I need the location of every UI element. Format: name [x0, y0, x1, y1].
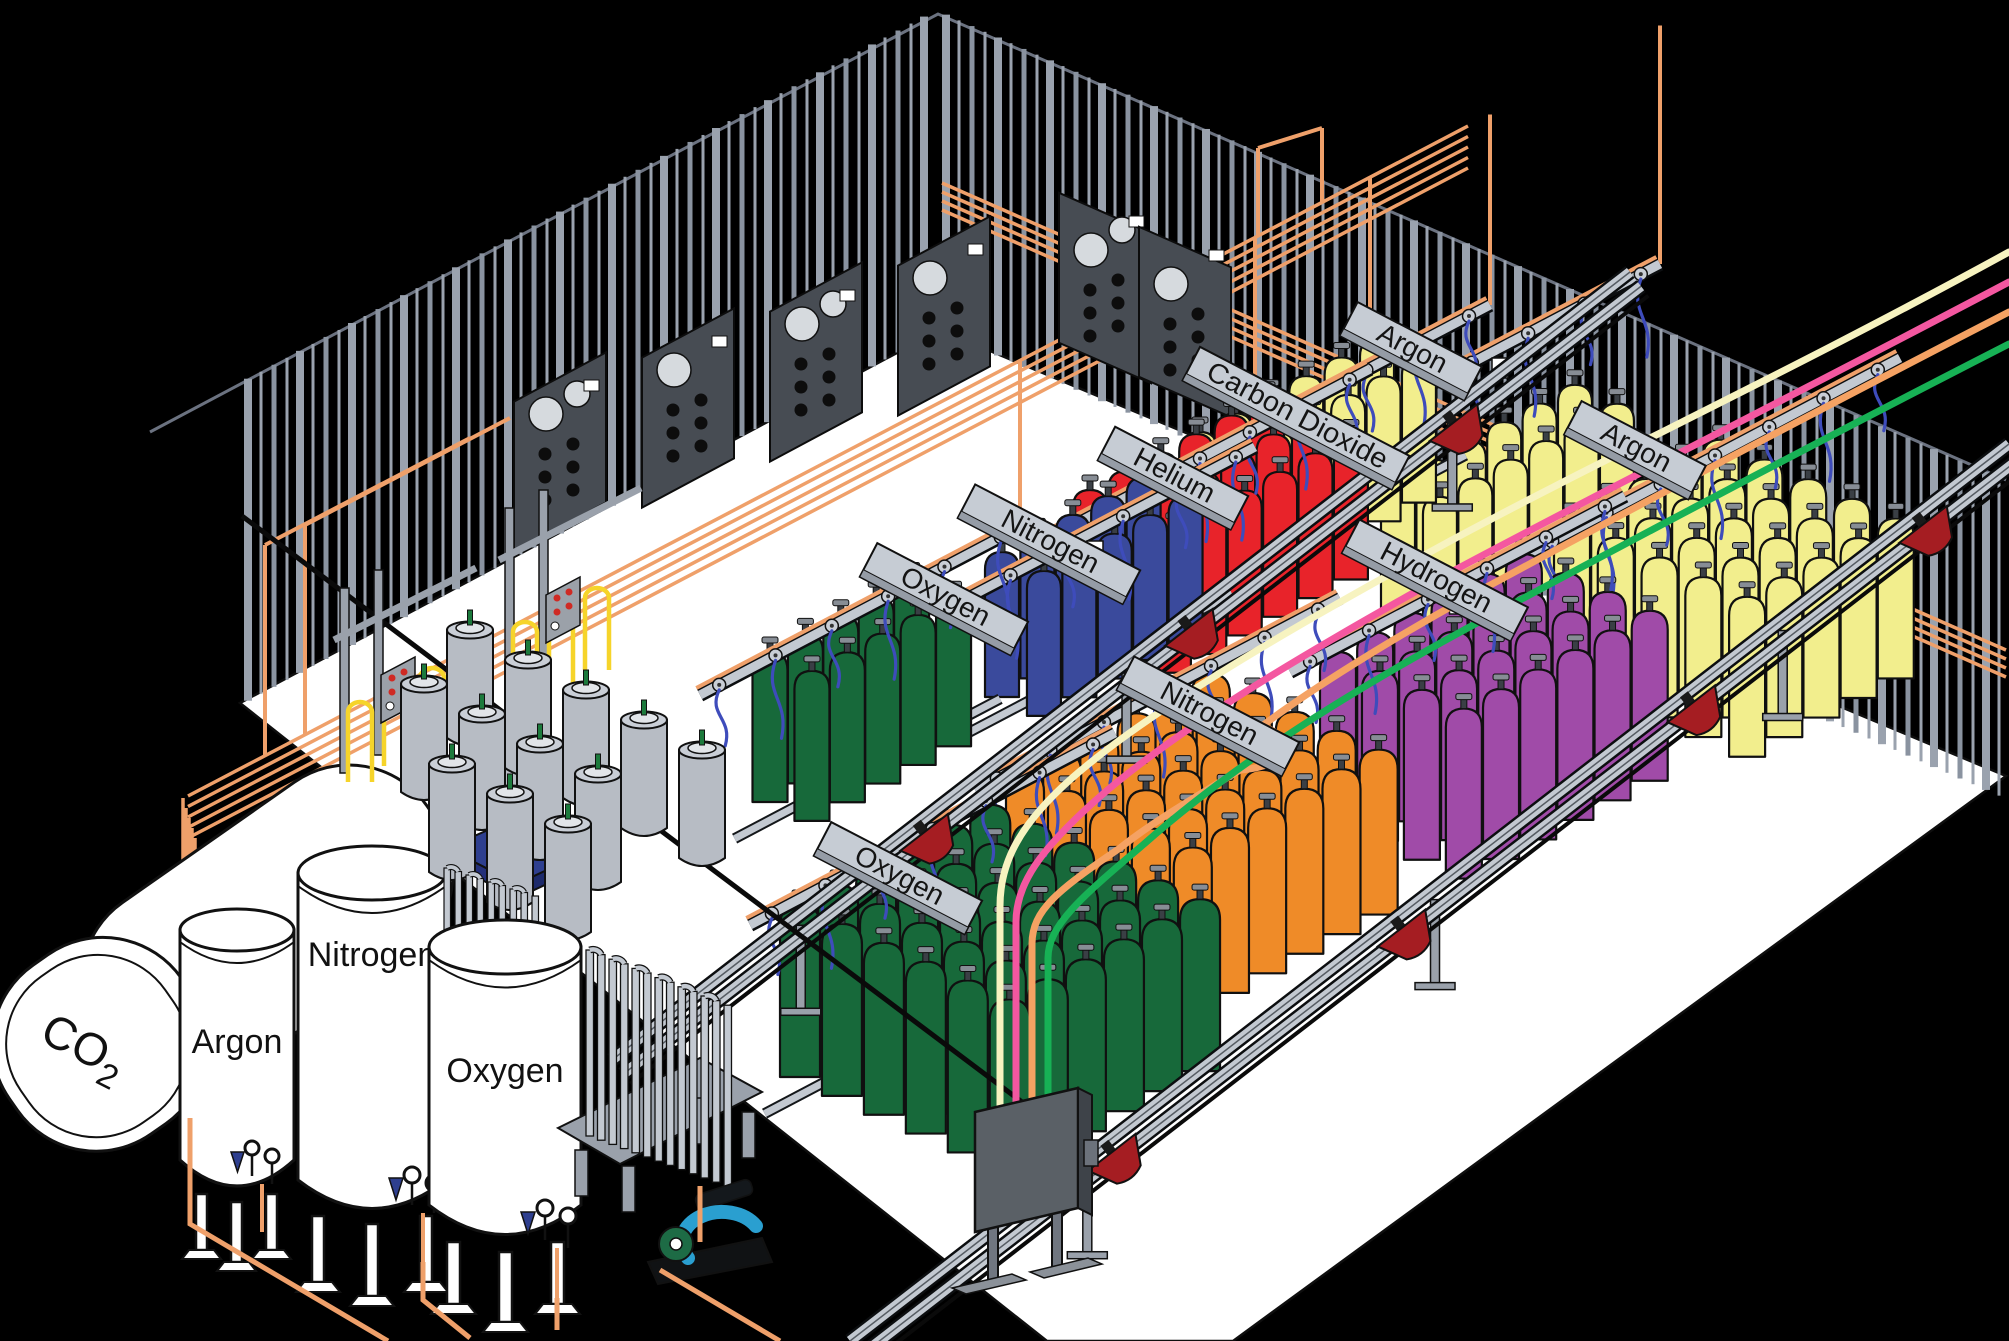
dewar-valve: [538, 724, 543, 739]
gauge-tag: [1129, 216, 1144, 227]
gauge-dot: [1084, 330, 1097, 343]
panel-indicator: [566, 589, 573, 596]
cylinder-valve-wheel: [762, 637, 778, 643]
cylinder-valve-wheel: [1689, 523, 1705, 529]
vaporizer-tube: [609, 959, 617, 1144]
conveyor-post-foot: [1432, 504, 1472, 511]
gauge-dot: [567, 461, 580, 474]
cylinder-valve-wheel: [1133, 737, 1149, 743]
cylinder-valve-wheel: [1296, 774, 1312, 780]
cylinder-valve-wheel: [1414, 675, 1430, 681]
argon-tank: Argon: [180, 909, 294, 1271]
cylinder-valve-wheel: [1642, 596, 1658, 602]
cylinder-valve-wheel: [1100, 481, 1116, 487]
vaporizer-tube: [598, 955, 606, 1141]
cylinder-valve-wheel: [1776, 562, 1792, 568]
cylinder-valve-wheel: [1770, 523, 1786, 529]
dewar-body: [429, 764, 475, 880]
manifold-valve-hub: [717, 683, 721, 687]
manifold-valve-hub: [1603, 505, 1607, 509]
gauge-dot: [951, 348, 964, 361]
cylinder-valve-wheel: [1138, 775, 1154, 781]
cylinder-valve-wheel: [876, 928, 892, 934]
cylinder-valve-wheel: [1739, 582, 1755, 588]
gauge-tag: [1209, 250, 1224, 261]
cylinder-valve-wheel: [797, 618, 813, 624]
gauge-dot: [823, 348, 836, 361]
conveyor-post-foot: [1415, 983, 1455, 990]
manifold-valve-hub: [1263, 636, 1267, 640]
cylinder-valve-wheel: [1456, 694, 1472, 700]
cylinder-valve-wheel: [875, 619, 891, 625]
cylinder-valve-wheel: [918, 947, 934, 953]
wall-stripe: [868, 44, 876, 366]
oxygen-tank-label: Oxygen: [446, 1052, 563, 1090]
dewar-valve: [526, 640, 531, 655]
cylinder-valve-wheel: [1521, 578, 1537, 584]
manifold-valve-hub: [774, 653, 778, 657]
gas-cylinder-oxygen_a: [794, 671, 829, 821]
cylinder-valve-wheel: [960, 965, 976, 971]
gauge-tag: [968, 244, 983, 255]
cylinder-valve-wheel: [1800, 464, 1816, 470]
wall-stripe: [884, 37, 887, 359]
gas-cylinder-oxygen_b: [1104, 939, 1144, 1111]
cylinder-valve-wheel: [1112, 885, 1128, 891]
cylinder-valve-wheel: [1334, 342, 1350, 348]
wall-stripe: [636, 170, 641, 492]
cylinder-valve-wheel: [1078, 944, 1094, 950]
gas-cylinder-nitrogen_b: [1322, 769, 1360, 934]
conveyor-post-foot: [781, 1008, 821, 1015]
cylinder-valve-wheel: [1259, 793, 1275, 799]
gauge-dot: [823, 394, 836, 407]
cylinder-valve-wheel: [1446, 617, 1462, 623]
cylinder-valve-wheel: [1732, 542, 1748, 548]
cylinder-valve-wheel: [1567, 370, 1583, 376]
manifold-valve-hub: [1467, 314, 1471, 318]
gauge-dot: [1164, 318, 1177, 331]
cylinder-valve-wheel: [1082, 475, 1098, 481]
gauge-dot: [795, 381, 808, 394]
cylinder-valve-wheel: [804, 656, 820, 662]
wall-stripe: [494, 246, 497, 568]
manifold-valve-hub: [1198, 457, 1202, 461]
manifold-valve-hub: [1485, 567, 1489, 571]
cylinder-valve-wheel: [1467, 463, 1483, 469]
manifold-valve-hub: [1038, 771, 1042, 775]
manifold-valve-hub: [1234, 455, 1238, 459]
liquid-dewar: [621, 700, 667, 836]
gauge-dot: [567, 438, 580, 451]
cylinder-valve-wheel: [1558, 558, 1574, 564]
gauge-dot: [951, 302, 964, 315]
panel-button: [551, 622, 559, 630]
gauge-dot: [823, 371, 836, 384]
vaporizer-tube: [678, 987, 686, 1170]
cylinder-valve-wheel: [1530, 654, 1546, 660]
vaporizer-tube: [644, 973, 652, 1157]
gauge-tag: [584, 380, 599, 391]
vaporizer-tube: [586, 950, 594, 1136]
gas-cylinder-oxygen_b: [1142, 919, 1182, 1091]
gauge-dot: [539, 448, 552, 461]
wall-stripe: [452, 267, 460, 589]
manifold-valve-hub: [886, 594, 890, 598]
gauge-dot: [923, 312, 936, 325]
dewar-valve: [422, 664, 427, 679]
gas-cylinder-nitrogen_b: [1285, 789, 1323, 954]
wall-stripe: [1998, 478, 2001, 796]
wall-stripe: [244, 379, 252, 701]
gauge-dial: [913, 261, 947, 295]
platform-leg: [575, 1150, 588, 1196]
gas-cylinder-nitrogen_b: [1248, 808, 1286, 973]
manifold-valve-hub: [1209, 664, 1213, 668]
cylinder-valve-wheel: [1695, 562, 1711, 568]
manifold-valve-hub: [1526, 331, 1530, 335]
cylinder-valve-wheel: [1116, 924, 1132, 930]
gauge-dot: [695, 440, 708, 453]
dewar-valve: [642, 700, 647, 715]
gauge-dial: [1154, 267, 1188, 301]
wall-stripe: [624, 177, 627, 499]
gauge-dot: [1192, 308, 1205, 321]
gauge-dot: [667, 450, 680, 463]
gas-cylinder-hydrogen: [1404, 690, 1440, 860]
cylinder-valve-wheel: [1329, 716, 1345, 722]
gauge-dot: [1112, 297, 1125, 310]
gauge-dot: [667, 427, 680, 440]
gauge-dot: [1192, 331, 1205, 344]
vaporizer-tube: [621, 964, 629, 1149]
manifold-valve-hub: [942, 565, 946, 569]
vaporizer-tube: [690, 991, 698, 1173]
cylinder-valve-wheel: [1175, 756, 1191, 762]
cylinder-valve-wheel: [1032, 886, 1048, 892]
wall-stripe: [442, 274, 445, 596]
cylinder-valve-wheel: [1372, 656, 1388, 662]
gas-cylinder-nitrogen_b: [1360, 750, 1398, 915]
cylinder-valve-wheel: [1563, 596, 1579, 602]
gas-cylinder-oxygen_b: [822, 924, 862, 1096]
dewar-body: [545, 824, 591, 940]
wall-stripe: [312, 344, 315, 666]
cylinder-valve-wheel: [839, 637, 855, 643]
wall-stripe: [1022, 49, 1027, 367]
oxygen-tank: Oxygen: [429, 920, 581, 1332]
gauge-dot: [695, 417, 708, 430]
wall-stripe: [608, 184, 616, 506]
gas-cylinder-oxygen_a: [830, 652, 865, 802]
gauge-dot: [1164, 341, 1177, 354]
gauge-dot: [567, 484, 580, 497]
panel-indicator: [554, 595, 561, 602]
panel-button: [386, 702, 394, 710]
manifold-valve-hub: [1639, 272, 1643, 276]
cylinder-valve-wheel: [1185, 832, 1201, 838]
manifold-valve-hub: [1367, 628, 1371, 632]
gauge-dot: [1164, 364, 1177, 377]
wall-stripe: [1972, 466, 1975, 784]
wall-stripe: [1946, 455, 1949, 773]
gauge-tag: [840, 290, 855, 301]
manifold-valve-hub: [1248, 430, 1252, 434]
cylinder-valve-wheel: [1538, 426, 1554, 432]
dewar-valve: [584, 670, 589, 685]
wall-stripe: [994, 38, 1002, 356]
cylinder-valve-wheel: [1451, 655, 1467, 661]
cylinder-valve-wheel: [1150, 865, 1166, 871]
manifold-valve-hub: [1091, 743, 1095, 747]
wall-stripe: [468, 260, 471, 582]
wall-stripe: [1046, 60, 1054, 378]
platform-leg: [742, 1112, 755, 1158]
vaporizer-tube: [701, 996, 709, 1178]
vaporizer-tube: [632, 968, 640, 1152]
manifold-valve-hub: [1767, 425, 1771, 429]
gauge-dot: [695, 394, 708, 407]
wall-stripe: [324, 337, 329, 659]
wall-stripe: [390, 302, 393, 624]
gauge-dot: [795, 358, 808, 371]
dewar-body: [679, 750, 725, 866]
cylinder-valve-wheel: [1525, 616, 1541, 622]
wall-stripe: [480, 253, 485, 575]
cylinder-valve-wheel: [833, 600, 849, 606]
dewar-valve: [566, 804, 571, 819]
gas-plant-diagram: Oxygen Nitrogen Helium Carbon Dioxide Ar…: [0, 0, 2009, 1341]
dewar-valve: [480, 694, 485, 709]
liquid-dewar: [679, 730, 725, 866]
wall-stripe: [364, 316, 367, 638]
cylinder-valve-wheel: [1851, 523, 1867, 529]
gauge-dial: [529, 397, 563, 431]
cylinder-valve-wheel: [1567, 635, 1583, 641]
conveyor-post-foot: [1763, 714, 1803, 721]
manifold-valve-hub: [1876, 368, 1880, 372]
gauge-dial: [657, 353, 691, 387]
wall-stripe: [1920, 443, 1923, 761]
manifold-valve-hub: [1544, 536, 1548, 540]
cylinder-valve-wheel: [1333, 754, 1349, 760]
liquid-dewar: [429, 744, 475, 880]
panel-indicator: [401, 669, 408, 676]
wall-stripe: [754, 107, 757, 429]
cylinder-valve-wheel: [1888, 503, 1904, 509]
dewar-valve: [700, 730, 705, 745]
nitrogen-tank-label: Nitrogen: [308, 936, 437, 974]
vaporizer-tube: [667, 982, 675, 1165]
cylinder-valve-wheel: [1154, 904, 1170, 910]
cylinder-valve-wheel: [1298, 361, 1314, 367]
gas-cylinder-oxygen_b: [906, 962, 946, 1134]
gauge-dot: [795, 404, 808, 417]
gauge-dot: [951, 325, 964, 338]
gas-cylinder-oxygen_a: [901, 615, 936, 765]
station-post: [374, 570, 383, 755]
gauge-dot: [1084, 307, 1097, 320]
wall-stripe: [1036, 55, 1039, 373]
gauge-dial: [785, 307, 819, 341]
manifold-valve-hub: [1713, 454, 1717, 458]
vaporizer-tube: [713, 1001, 721, 1183]
vaporizer-tube: [444, 868, 451, 936]
cylinder-valve-wheel: [1609, 389, 1625, 395]
cylinder-valve-wheel: [1605, 615, 1621, 621]
gas-cylinder-oxygen_b: [864, 943, 904, 1115]
cylinder-valve-wheel: [1726, 503, 1742, 509]
dewar-valve: [468, 610, 473, 625]
gas-cylinder-oxygen_b: [1180, 899, 1220, 1071]
cylinder-valve-wheel: [1652, 542, 1668, 548]
platform-leg: [622, 1166, 635, 1212]
panel-indicator: [566, 603, 573, 610]
cylinder-valve-wheel: [1493, 674, 1509, 680]
argon-tank-label: Argon: [192, 1023, 283, 1061]
dewar-valve: [508, 774, 513, 789]
gauge-dial: [1074, 233, 1108, 267]
wall-stripe: [400, 295, 408, 617]
cylinder-valve-wheel: [1813, 543, 1829, 549]
gauge-dot: [1084, 284, 1097, 297]
gauge-dot: [1112, 274, 1125, 287]
gauge-dot: [1112, 320, 1125, 333]
wall-stripe: [1010, 43, 1013, 361]
dewar-valve: [450, 744, 455, 759]
cylinder-valve-wheel: [1192, 884, 1208, 890]
gauge-dot: [667, 404, 680, 417]
gauge-dot: [923, 335, 936, 348]
manifold-valve-hub: [1348, 378, 1352, 382]
cylinder-valve-wheel: [1503, 445, 1519, 451]
panel-indicator: [554, 609, 561, 616]
vaporizer-tube: [655, 978, 663, 1162]
wall-stripe: [1982, 472, 1990, 790]
panel-indicator: [389, 689, 396, 696]
cylinder-valve-wheel: [1272, 457, 1288, 463]
station-post: [539, 490, 548, 675]
liquid-dewar: [545, 804, 591, 940]
gauge-dot: [539, 471, 552, 484]
cylinder-valve-wheel: [1153, 438, 1169, 444]
wall-stripe: [740, 114, 745, 436]
manifold-valve-hub: [1009, 573, 1013, 577]
wall-stripe: [428, 281, 433, 603]
manifold-valve-hub: [1102, 720, 1106, 724]
gas-cylinder-nitrogen_a: [1027, 571, 1061, 716]
panel-indicator: [389, 675, 396, 682]
gauge-dot: [923, 358, 936, 371]
wall-stripe: [296, 351, 304, 673]
nitrogen-tank: Nitrogen: [296, 846, 448, 1306]
manifold-valve-hub: [1121, 514, 1125, 518]
cylinder-valve-wheel: [1237, 475, 1253, 481]
wall-stripe: [286, 358, 289, 680]
wall-stripe: [272, 365, 277, 687]
gauge-tag: [712, 336, 727, 347]
manifold-valve-hub: [830, 624, 834, 628]
vaporizer-tube: [724, 1005, 732, 1186]
dewar-valve: [596, 754, 601, 769]
cylinder-valve-wheel: [1807, 503, 1823, 509]
wall-stripe: [416, 288, 419, 610]
cylinder-valve-wheel: [1844, 484, 1860, 490]
manifold-valve-hub: [1822, 396, 1826, 400]
cylinder-valve-wheel: [1188, 419, 1204, 425]
dewar-body: [621, 720, 667, 836]
cylinder-valve-wheel: [1065, 500, 1081, 506]
cylinder-valve-wheel: [1371, 735, 1387, 741]
cylinder-valve-wheel: [1222, 813, 1238, 819]
cylinder-valve-wheel: [1409, 636, 1425, 642]
manifold-valve-hub: [1308, 659, 1312, 663]
